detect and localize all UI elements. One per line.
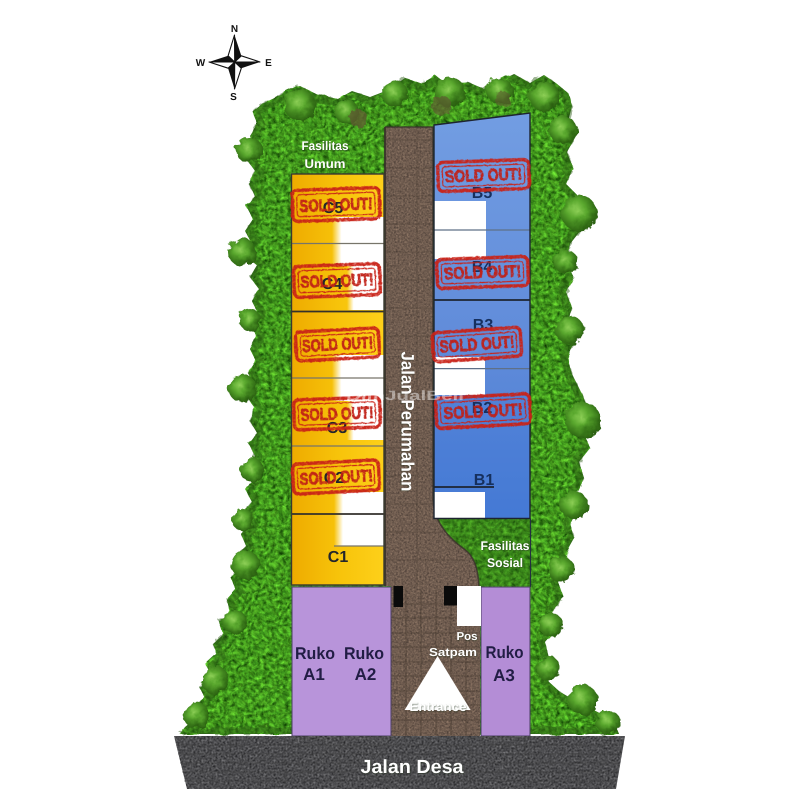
svg-text:SOLD OUT!: SOLD OUT! — [300, 270, 374, 292]
svg-text:SOLD OUT!: SOLD OUT! — [300, 403, 374, 425]
svg-text:Fasilitas: Fasilitas — [302, 139, 349, 153]
svg-text:N: N — [231, 24, 238, 35]
svg-text:Ruko: Ruko — [486, 643, 524, 662]
svg-text:Entrance: Entrance — [410, 700, 467, 714]
svg-text:Jalan Desa: Jalan Desa — [361, 757, 464, 778]
svg-text:Ruko: Ruko — [295, 644, 335, 663]
svg-text:A1: A1 — [303, 665, 325, 684]
svg-text:Pos: Pos — [456, 631, 477, 643]
svg-text:E: E — [265, 58, 272, 69]
svg-text:Jalan Perumahan: Jalan Perumahan — [398, 352, 418, 492]
svg-text:W: W — [196, 58, 206, 69]
svg-text:S: S — [230, 92, 237, 103]
svg-text:Satpam: Satpam — [429, 647, 477, 659]
svg-text:SOLD OUT!: SOLD OUT! — [444, 262, 522, 284]
svg-text:Umum: Umum — [305, 157, 346, 171]
svg-text:B5: B5 — [472, 185, 493, 202]
svg-text:A3: A3 — [493, 666, 515, 685]
svg-text:C1: C1 — [328, 549, 349, 566]
svg-text:SOLD OUT!: SOLD OUT! — [445, 165, 523, 187]
svg-text:SOLD OUT!: SOLD OUT! — [302, 333, 374, 356]
svg-text:Fasilitas: Fasilitas — [481, 539, 530, 553]
svg-text:DimJualBeli: DimJualBeli — [346, 388, 464, 403]
svg-text:SOLD OUT!: SOLD OUT! — [299, 466, 373, 489]
svg-text:A2: A2 — [355, 665, 377, 684]
svg-text:Ruko: Ruko — [344, 644, 384, 663]
svg-text:Sosial: Sosial — [487, 556, 523, 570]
svg-text:B1: B1 — [474, 472, 495, 489]
svg-text:SOLD OUT!: SOLD OUT! — [299, 194, 373, 216]
